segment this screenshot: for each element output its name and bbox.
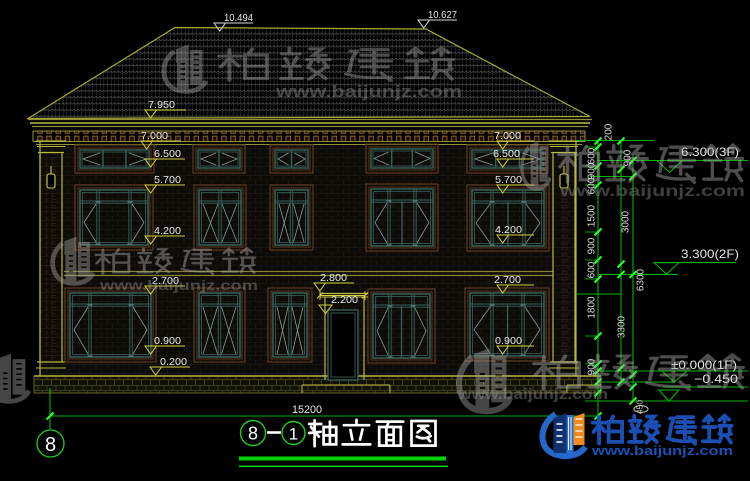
- svg-text:7.000: 7.000: [494, 131, 521, 142]
- svg-text:900: 900: [587, 237, 598, 254]
- svg-text:1500: 1500: [587, 204, 598, 227]
- svg-text:6300: 6300: [636, 268, 647, 291]
- svg-text:www.baijunjz.com: www.baijunjz.com: [457, 386, 608, 403]
- svg-text:2.200: 2.200: [331, 295, 358, 306]
- svg-text:10.494: 10.494: [224, 13, 253, 24]
- svg-text:2.800: 2.800: [320, 273, 347, 284]
- svg-text:600: 600: [587, 261, 598, 278]
- svg-text:4.200: 4.200: [495, 225, 522, 236]
- svg-text:0.900: 0.900: [495, 336, 522, 347]
- svg-text:3000: 3000: [621, 210, 632, 233]
- svg-text:6.500: 6.500: [154, 149, 181, 160]
- svg-text:www.baijunjz.com: www.baijunjz.com: [275, 82, 462, 101]
- svg-text:10.627: 10.627: [428, 10, 457, 21]
- svg-text:3300: 3300: [617, 315, 628, 338]
- svg-text:www.baijunjz.com: www.baijunjz.com: [559, 183, 745, 200]
- svg-text:6.500: 6.500: [493, 149, 520, 160]
- svg-text:200: 200: [604, 123, 615, 140]
- svg-text:5.700: 5.700: [154, 175, 181, 186]
- svg-text:www.baijunjz.com: www.baijunjz.com: [99, 278, 258, 293]
- svg-text:7.000: 7.000: [141, 131, 168, 142]
- svg-text:600: 600: [587, 147, 598, 164]
- svg-text:0.900: 0.900: [154, 336, 181, 347]
- svg-text:8: 8: [248, 424, 258, 444]
- svg-text:0.200: 0.200: [160, 357, 187, 368]
- svg-text:5.700: 5.700: [495, 175, 522, 186]
- svg-text:8: 8: [45, 434, 56, 456]
- svg-text:2.700: 2.700: [494, 275, 521, 286]
- svg-text:4.200: 4.200: [154, 226, 181, 237]
- svg-text:1: 1: [289, 425, 298, 444]
- svg-text:7.950: 7.950: [148, 100, 175, 111]
- svg-text:3.300(2F): 3.300(2F): [681, 247, 739, 261]
- svg-text:1800: 1800: [587, 296, 598, 319]
- svg-text:www.baijunjz.com: www.baijunjz.com: [591, 443, 733, 458]
- svg-text:15200: 15200: [292, 404, 322, 416]
